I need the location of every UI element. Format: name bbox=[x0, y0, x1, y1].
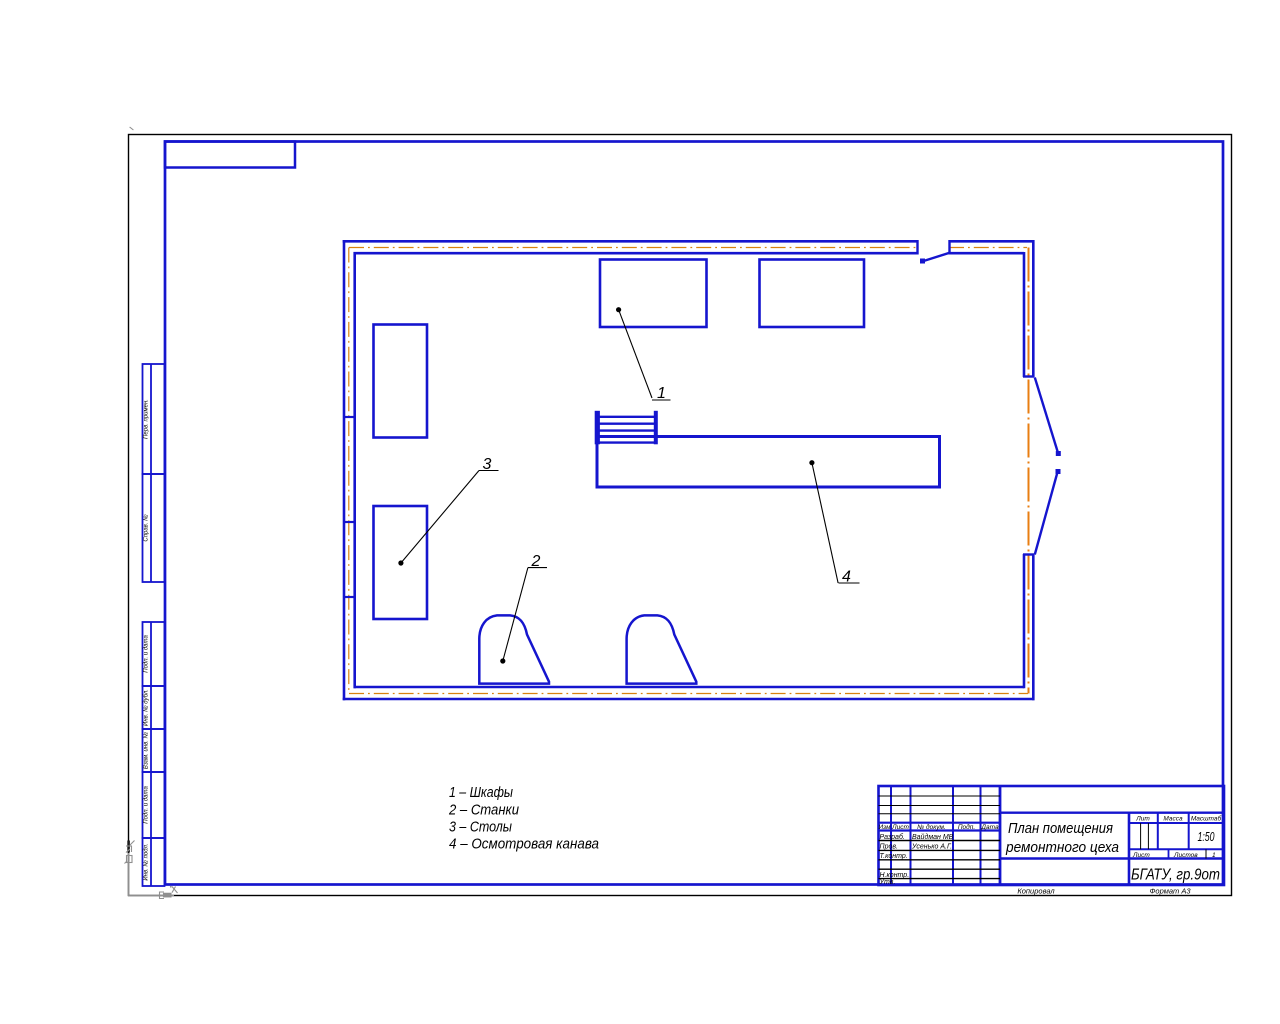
svg-text:Листов: Листов bbox=[1173, 852, 1198, 859]
svg-text:Подп.: Подп. bbox=[958, 823, 975, 831]
svg-text:Изм: Изм bbox=[878, 824, 891, 831]
svg-text:1 – Шкафы: 1 – Шкафы bbox=[449, 785, 513, 801]
svg-text:Справ. №: Справ. № bbox=[143, 514, 150, 542]
svg-text:Формат А3: Формат А3 bbox=[1149, 887, 1191, 896]
svg-text:Пров.: Пров. bbox=[880, 844, 899, 851]
svg-text:Масса: Масса bbox=[1163, 815, 1183, 822]
svg-text:Инв. № дубл.: Инв. № дубл. bbox=[143, 689, 150, 726]
svg-text:БГАТУ, гр.9от: БГАТУ, гр.9от bbox=[1131, 867, 1220, 884]
svg-text:Лит: Лит bbox=[1135, 815, 1150, 822]
svg-text:ремонтного цеха: ремонтного цеха bbox=[1005, 840, 1119, 856]
svg-text:Усенько А.Г.: Усенько А.Г. bbox=[911, 844, 952, 851]
svg-text:1:50: 1:50 bbox=[1198, 830, 1215, 844]
svg-text:1: 1 bbox=[1212, 852, 1216, 859]
svg-text:№ докум.: № докум. bbox=[917, 823, 946, 831]
svg-text:Т.контр.: Т.контр. bbox=[880, 853, 908, 860]
svg-text:3: 3 bbox=[483, 456, 492, 473]
svg-text:Лист: Лист bbox=[891, 824, 909, 831]
svg-text:Масштаб: Масштаб bbox=[1191, 814, 1222, 822]
svg-text:Инв. № подл.: Инв. № подл. bbox=[143, 843, 150, 880]
svg-text:Н.контр.: Н.контр. bbox=[880, 872, 910, 879]
svg-text:Подп. и дата: Подп. и дата bbox=[144, 635, 150, 673]
svg-text:Вайдман МВ: Вайдман МВ bbox=[912, 833, 954, 841]
svg-text:1: 1 bbox=[657, 385, 666, 402]
svg-text:Взам. инв. №: Взам. инв. № bbox=[143, 731, 150, 769]
svg-text:План помещения: План помещения bbox=[1008, 821, 1113, 837]
svg-text:2 – Станки: 2 – Станки bbox=[448, 803, 519, 819]
svg-text:Дата: Дата bbox=[980, 824, 999, 831]
svg-text:Перв. примен.: Перв. примен. bbox=[144, 399, 150, 439]
svg-text:2: 2 bbox=[531, 553, 541, 570]
svg-text:4: 4 bbox=[842, 569, 851, 586]
svg-text:Утв.: Утв. bbox=[879, 879, 896, 886]
svg-text:3 – Столы: 3 – Столы bbox=[449, 820, 512, 836]
svg-text:Лист: Лист bbox=[1132, 852, 1150, 859]
svg-text:Разраб.: Разраб. bbox=[880, 833, 905, 841]
svg-text:4 – Осмотровая канава: 4 – Осмотровая канава bbox=[449, 837, 599, 853]
svg-text:Копировал: Копировал bbox=[1017, 887, 1055, 896]
svg-text:Подп. и дата: Подп. и дата bbox=[144, 786, 150, 824]
